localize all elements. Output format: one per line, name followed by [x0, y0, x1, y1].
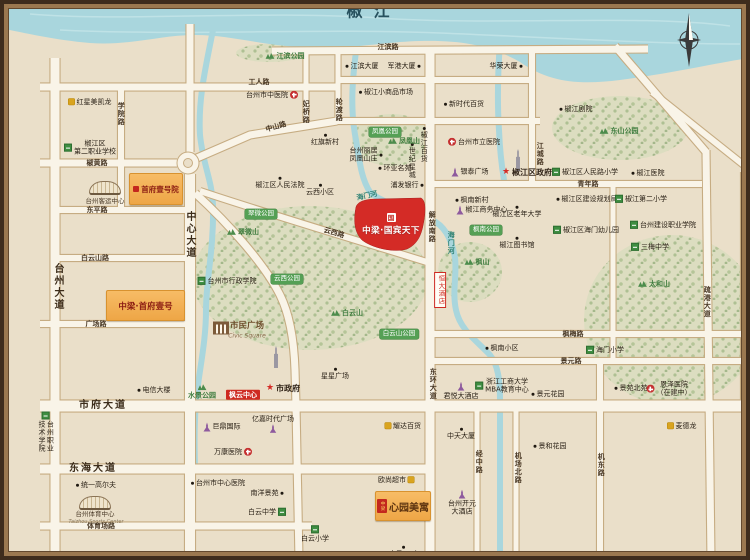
poi-dot-icon — [191, 481, 194, 484]
school-icon — [631, 243, 639, 251]
map-label-dot: 星星广场 — [321, 368, 349, 380]
building-icon — [452, 168, 459, 177]
civic-building-icon — [213, 322, 229, 335]
label-text: 台州开元 大酒店 — [448, 500, 476, 517]
building-icon — [459, 490, 466, 499]
map-label-rd: 妃桥路 — [302, 100, 310, 124]
label-text: 华荣大厦 — [490, 62, 518, 70]
label-text: 台州大道 — [51, 263, 63, 311]
label-text: 白云山公园 — [380, 329, 419, 339]
map-label-dot: 枫南小区 — [486, 344, 519, 352]
label-text: 翠微山 — [238, 228, 259, 236]
stadium-icon — [79, 496, 111, 510]
label-text: 台州市行政学院 — [208, 277, 257, 285]
map-label-mtn: 翠微山 — [227, 228, 259, 236]
label-text: 台州市中心医院 — [196, 479, 245, 487]
label-text: 江滨大厦 — [351, 62, 379, 70]
label-text: 工人路 — [249, 78, 270, 86]
poi-dot-icon — [379, 166, 382, 169]
label-text: 景苑北苑 — [620, 384, 648, 392]
map-label-sch: 白云小学 — [301, 525, 329, 542]
map-label-ttl: 椒江 — [335, 1, 400, 20]
label-text: 台州丽居 凤凰山庄 — [350, 147, 378, 164]
mountain-icon — [266, 53, 275, 59]
label-text: 白云山路 — [81, 254, 109, 262]
store-icon — [385, 423, 391, 429]
poi-dot-icon — [532, 392, 535, 395]
label-text: 台州建设职业学院 — [640, 221, 696, 229]
map-label-hos: 万康医院 — [214, 448, 252, 456]
project-parcel: 中梁心园美寓 — [375, 491, 431, 521]
map-label-rd: 江城路 — [536, 142, 544, 166]
map-label-rd: 东环大道 — [429, 368, 437, 400]
map-label-dot: 华荣大厦 — [490, 62, 523, 70]
map-label-pk: 云西公园 — [271, 274, 303, 284]
label-text: 市民广场 — [230, 321, 264, 331]
poi-dot-icon — [279, 177, 282, 180]
map-label-hos: 恩泽医院 （在建中） — [647, 381, 692, 398]
map-label-mtn: 东山公园 — [600, 127, 639, 135]
parcel-name: 中梁·国宾天下 — [362, 224, 420, 236]
map-label-vtag: 恒大酒店 — [434, 272, 446, 308]
store-icon — [408, 477, 414, 483]
label-text: 星星广场 — [321, 372, 349, 380]
school-icon — [42, 412, 50, 420]
stadium-icon — [89, 181, 121, 195]
map-label-tag: 枫云中心 — [226, 390, 260, 400]
map-label-mtn: 江滨公园 — [266, 52, 305, 60]
hospital-icon — [448, 138, 456, 146]
poi-dot-icon — [632, 171, 635, 174]
label-text: 椒江小商品市场 — [364, 88, 413, 96]
map-label-sch: 三梅中学 — [631, 243, 669, 251]
map-label-dot: 世纪星城 — [408, 143, 416, 179]
label-text: 椒江区建设规划局 — [562, 195, 618, 203]
map-label-lm: 台州客运中心 — [86, 198, 125, 206]
map-label-yel: 麦德龙 — [668, 422, 697, 430]
label-text: 君悦大酒店 — [444, 392, 479, 400]
label-text: 经中路 — [475, 450, 483, 474]
school-icon — [311, 525, 319, 533]
map-label-dot: 台州丽居 凤凰山庄 — [350, 147, 383, 164]
label-text: 椒江商务中心 — [466, 206, 508, 214]
map-label-sch: 椒江第二小学 — [615, 195, 667, 203]
poi-dot-icon — [516, 237, 519, 240]
school-icon — [552, 168, 560, 176]
label-text: 枫云中心 — [226, 390, 260, 400]
label-text: 椒江区政府 — [512, 168, 552, 178]
map-label-sch: 椒江区 第二职业学校 — [64, 140, 116, 157]
school-icon — [198, 277, 206, 285]
parcel-name: 心园美寓 — [389, 499, 429, 514]
store-icon — [668, 423, 674, 429]
map-label-sch: 台州建设职业学院 — [630, 221, 696, 229]
poi-dot-icon — [422, 127, 425, 130]
map-label-dot: 枫南新村 — [456, 196, 489, 204]
label-text: 东平路 — [87, 206, 108, 214]
label-text: 椒江图书馆 — [500, 241, 535, 249]
building-icon — [457, 206, 464, 215]
label-text: 椒江 — [335, 1, 400, 20]
label-text: 银泰广场 — [461, 168, 489, 176]
school-icon — [586, 346, 594, 354]
map-label-rd: 疏港大道 — [703, 286, 711, 318]
map-label-sch: 台州职业 技术学院 — [38, 412, 55, 453]
label-text: 东海大道 — [69, 463, 117, 475]
poi-dot-icon — [421, 183, 424, 186]
label-text: 机场北路 — [514, 452, 522, 484]
label-text: 枫梅路 — [563, 330, 584, 338]
label-text: 枫山 — [476, 258, 490, 266]
label-text: 白云中学 — [248, 508, 276, 516]
label-text: 枫南小区 — [491, 344, 519, 352]
label-text: 轮渡路 — [335, 98, 343, 122]
map-label-dot: 景苑北苑 — [615, 384, 648, 392]
label-text: 椒江区 第二职业学校 — [74, 140, 116, 157]
label-text: 解放南路 — [428, 211, 436, 243]
building-icon — [458, 382, 465, 391]
project-parcel: 中梁·首府壹号 — [106, 290, 185, 321]
map-label-yel: 红星美凯龙 — [69, 98, 112, 106]
label-text: 椒江剧院 — [565, 105, 593, 113]
map-label-rd: 机场北路 — [514, 452, 522, 484]
mountain-icon — [198, 384, 207, 390]
poi-dot-icon — [444, 102, 447, 105]
label-text: 机东路 — [597, 453, 605, 477]
map-label-hos: 台州市中医院 — [246, 91, 298, 99]
label-text: Taizhou Sports Center — [68, 519, 123, 525]
label-text: 枫南新村 — [461, 196, 489, 204]
hospital-icon — [647, 385, 655, 393]
label-text: 疏港大道 — [703, 286, 711, 318]
mountain-icon — [227, 229, 236, 235]
poi-dot-icon — [560, 107, 563, 110]
map-label-dot: 环亚名苑 — [379, 164, 412, 172]
label-text: 白云山 — [342, 309, 363, 317]
poi-dot-icon — [359, 90, 362, 93]
label-text: 市府大道 — [79, 400, 127, 412]
label-text: 海门小学 — [596, 346, 624, 354]
label-text: 椒江医院 — [637, 169, 665, 177]
map-label-rd: 工人路 — [249, 78, 270, 86]
parcel-name: 首府壹号院 — [141, 184, 179, 195]
map-label-mtn: 水景公园 — [188, 384, 216, 399]
map-label-hos: 台州市立医院 — [448, 138, 500, 146]
map-label-civ1: 市民广场 — [230, 321, 264, 331]
label-text: 凤凰山 — [399, 137, 420, 145]
label-text: 新时代百货 — [449, 100, 484, 108]
poi-dot-icon — [460, 428, 463, 431]
poi-dot-icon — [281, 491, 284, 494]
map-label-dot: 宝马4S店 — [389, 546, 419, 558]
label-text: 台州职业 技术学院 — [38, 421, 55, 453]
map-label-lmE: Taizhou Sports Center — [68, 519, 123, 525]
label-text: 景和花园 — [539, 442, 567, 450]
label-text: 青年路 — [578, 180, 599, 188]
school-icon — [615, 195, 623, 203]
label-text: 学院路 — [117, 102, 125, 126]
map-label-rd: 白云山路 — [81, 254, 109, 262]
map-label-mtn: 太和山 — [638, 280, 670, 288]
map-label-rd: 青年路 — [578, 180, 599, 188]
label-text: 红旗新村 — [311, 138, 339, 146]
label-text: 椒江区人民法院 — [256, 181, 305, 189]
map-label-rd: 经中路 — [475, 450, 483, 474]
map-label-rdM: 台州大道 — [51, 263, 63, 311]
label-text: 世纪星城 — [408, 147, 416, 179]
poi-dot-icon — [319, 184, 322, 187]
school-icon — [278, 508, 286, 516]
label-text: 翠微公园 — [245, 209, 277, 219]
map-label-dot: 台州市中心医院 — [191, 479, 245, 487]
poi-dot-icon — [615, 386, 618, 389]
label-text: 景元花园 — [537, 390, 565, 398]
label-text: 麦德龙 — [676, 422, 697, 430]
map-label-gov: ★市政府 — [266, 384, 300, 394]
map-label-civ2: Civic Square — [228, 332, 266, 339]
label-text: 电信大楼 — [143, 386, 171, 394]
label-text: 东山公园 — [611, 127, 639, 135]
label-text: 恒大酒店 — [434, 272, 446, 308]
map-label-dot: 景和花园 — [534, 442, 567, 450]
building-icon — [204, 423, 211, 432]
map-label-dot: 统一高尔夫 — [76, 481, 116, 489]
map-label-pur: 君悦大酒店 — [444, 382, 479, 400]
mountain-icon — [331, 310, 340, 316]
map-label-sch: 浙江工商大学 MBA教育中心 — [475, 378, 529, 395]
map-label-dot: 椒江百货 — [420, 127, 428, 163]
label-text: 巨鼎国际 — [213, 423, 241, 431]
developer-seal: 中梁 — [377, 499, 387, 513]
label-text: 中天大厦 — [447, 432, 475, 440]
poi-dot-icon — [76, 483, 79, 486]
label-text: 中心大道 — [183, 211, 195, 259]
map-label-rd: 景元路 — [561, 357, 582, 365]
label-text: 云西小区 — [306, 188, 334, 196]
map-label-yel: 欧尚超市 — [378, 476, 414, 484]
school-icon — [553, 226, 561, 234]
label-text: 水景公园 — [188, 391, 216, 399]
map-label-lm: 台州体育中心 — [76, 511, 115, 519]
map-label-rd: 机东路 — [597, 453, 605, 477]
poi-dot-icon — [418, 64, 421, 67]
mountain-icon — [638, 281, 647, 287]
label-text: 云西公园 — [271, 274, 303, 284]
map-label-pk: 翠微公园 — [245, 209, 277, 219]
label-text: 广场路 — [86, 320, 107, 328]
label-text: 万康医院 — [214, 448, 242, 456]
map-label-dot: 云西小区 — [306, 184, 334, 196]
poi-dot-icon — [516, 206, 519, 209]
map-label-dot: 军港大厦 — [388, 62, 421, 70]
poi-dot-icon — [324, 134, 327, 137]
map-label-dot: 椒江医院 — [632, 169, 665, 177]
label-text: 恩泽医院 （在建中） — [657, 381, 692, 398]
star-icon: ★ — [502, 169, 510, 178]
school-icon — [630, 221, 638, 229]
map-label-pur: 台州开元 大酒店 — [448, 490, 476, 517]
mountain-icon — [600, 128, 609, 134]
hospital-icon — [290, 91, 298, 99]
label-text: 椒江区人民路小学 — [562, 168, 618, 176]
map-label-rdM: 中心大道 — [183, 211, 195, 259]
label-text: 三梅中学 — [641, 243, 669, 251]
star-icon: ★ — [266, 385, 274, 394]
label-text: 椒江区海门幼儿园 — [563, 226, 619, 234]
label-text: 军港大厦 — [388, 62, 416, 70]
map-label-rd: 东平路 — [87, 206, 108, 214]
poi-dot-icon — [346, 64, 349, 67]
map-label-dot: 红旗新村 — [311, 134, 339, 146]
label-text: 椒江百货 — [420, 131, 428, 163]
label-text: Civic Square — [228, 332, 266, 339]
poi-dot-icon — [486, 346, 489, 349]
map-label-rd: 解放南路 — [428, 211, 436, 243]
map-canvas: 椒江江滨路工人路中山路椒黄路东平路白云山路广场路市府大道东海大道体育场路学院路台… — [0, 0, 750, 560]
map-label-pk: 白云山公园 — [380, 329, 419, 339]
map-label-dot: 椒江剧院 — [560, 105, 593, 113]
label-text: 浙江工商大学 MBA教育中心 — [485, 378, 529, 395]
label-text: 东环大道 — [429, 368, 437, 400]
poi-dot-icon — [456, 198, 459, 201]
map-label-pur: 银泰广场 — [452, 168, 489, 177]
label-text: 枫南公园 — [470, 225, 502, 235]
poi-dot-icon — [403, 546, 406, 549]
map-label-mtn: 白云山 — [331, 309, 363, 317]
map-label-dot: 椒江图书馆 — [500, 237, 535, 249]
map-label-rd: 枫梅路 — [563, 330, 584, 338]
developer-logo — [133, 186, 139, 192]
label-text: 景元路 — [561, 357, 582, 365]
label-text: 江滨路 — [378, 43, 399, 51]
label-text: 南洋景苑 — [251, 489, 279, 497]
map-label-mtn: 枫山 — [465, 258, 490, 266]
map-label-riv: 海门河 — [447, 231, 455, 255]
label-text: 统一高尔夫 — [81, 481, 116, 489]
label-text: 海门河 — [447, 231, 455, 255]
project-parcel: 首府壹号院 — [129, 173, 183, 205]
label-text: 椒江第二小学 — [625, 195, 667, 203]
parcel-name: 中梁·首府壹号 — [118, 300, 172, 312]
label-text: 江城路 — [536, 142, 544, 166]
mountain-icon — [388, 138, 397, 144]
map-label-rd: 椒黄路 — [87, 159, 108, 167]
map-label-rd: 广场路 — [86, 320, 107, 328]
label-text: 凤凰公园 — [369, 127, 401, 137]
map-label-dot: 电信大楼 — [138, 386, 171, 394]
map-label-yel: 耀达百货 — [385, 422, 421, 430]
label-text: 耀达百货 — [393, 422, 421, 430]
label-text: 台州市中医院 — [246, 91, 288, 99]
map-label-dot: 浦发银行 — [391, 181, 424, 189]
map-label-rdM: 市府大道 — [79, 400, 127, 412]
poi-dot-icon — [334, 368, 337, 371]
poi-dot-icon — [138, 388, 141, 391]
map-label-pur: 椒江商务中心 — [457, 206, 508, 215]
roundabout — [177, 152, 199, 174]
map-label-rd: 江滨路 — [378, 43, 399, 51]
label-text: 台州市立医院 — [458, 138, 500, 146]
label-text: 欧尚超市 — [378, 476, 406, 484]
map-label-rd: 轮渡路 — [335, 98, 343, 122]
map-label-dot: 江滨大厦 — [346, 62, 379, 70]
map-label-dot: 中天大厦 — [447, 428, 475, 440]
label-text: 市政府 — [276, 384, 300, 394]
label-text: 椒黄路 — [87, 159, 108, 167]
label-text: 江滨公园 — [277, 52, 305, 60]
map-label-pur: 亿嘉时代广场 — [252, 415, 294, 433]
map-label-rd: 学院路 — [117, 102, 125, 126]
map-label-pur: 巨鼎国际 — [204, 423, 241, 432]
poi-dot-icon — [520, 64, 523, 67]
map-label-pk: 枫南公园 — [470, 225, 502, 235]
map-label-gov: ★椒江区政府 — [502, 168, 552, 178]
mountain-icon — [465, 259, 474, 265]
map-label-sch: 白云中学 — [248, 508, 286, 516]
project-logo: 国 — [387, 213, 396, 222]
label-text: 亿嘉时代广场 — [252, 415, 294, 423]
label-text: 台州客运中心 — [86, 198, 125, 206]
map-label-rdM: 东海大道 — [69, 463, 117, 475]
map-label-mtn: 凤凰山 — [388, 137, 420, 145]
map-label-sch: 椒江区人民路小学 — [552, 168, 618, 176]
poi-dot-icon — [380, 154, 383, 157]
map-label-dot: 椒江区人民法院 — [256, 177, 305, 189]
label-text: 太和山 — [649, 280, 670, 288]
label-text: 妃桥路 — [302, 100, 310, 124]
map-label-dot: 新时代百货 — [444, 100, 484, 108]
map-label-pk: 凤凰公园 — [369, 127, 401, 137]
project-parcel-main: 国中梁·国宾天下 — [357, 198, 425, 250]
map-label-sch: 台州市行政学院 — [198, 277, 257, 285]
label-text: 宝马4S店 — [389, 550, 419, 558]
map-label-dot: 椒江区建设规划局 — [557, 195, 618, 203]
poi-dot-icon — [534, 444, 537, 447]
map-label-dot: 景元花园 — [532, 390, 565, 398]
poi-dot-icon — [557, 197, 560, 200]
map-label-sch: 椒江区海门幼儿园 — [553, 226, 619, 234]
label-text: 浦发银行 — [391, 181, 419, 189]
map-label-sch: 海门小学 — [586, 346, 624, 354]
label-text: 红星美凯龙 — [77, 98, 112, 106]
label-text: 台州体育中心 — [76, 511, 115, 519]
building-icon — [270, 424, 277, 433]
store-icon — [69, 99, 75, 105]
school-icon — [64, 144, 72, 152]
map-label-dot: 椒江小商品市场 — [359, 88, 413, 96]
label-text: 白云小学 — [301, 534, 329, 542]
map-label-dot: 南洋景苑 — [251, 489, 284, 497]
hospital-icon — [244, 448, 252, 456]
